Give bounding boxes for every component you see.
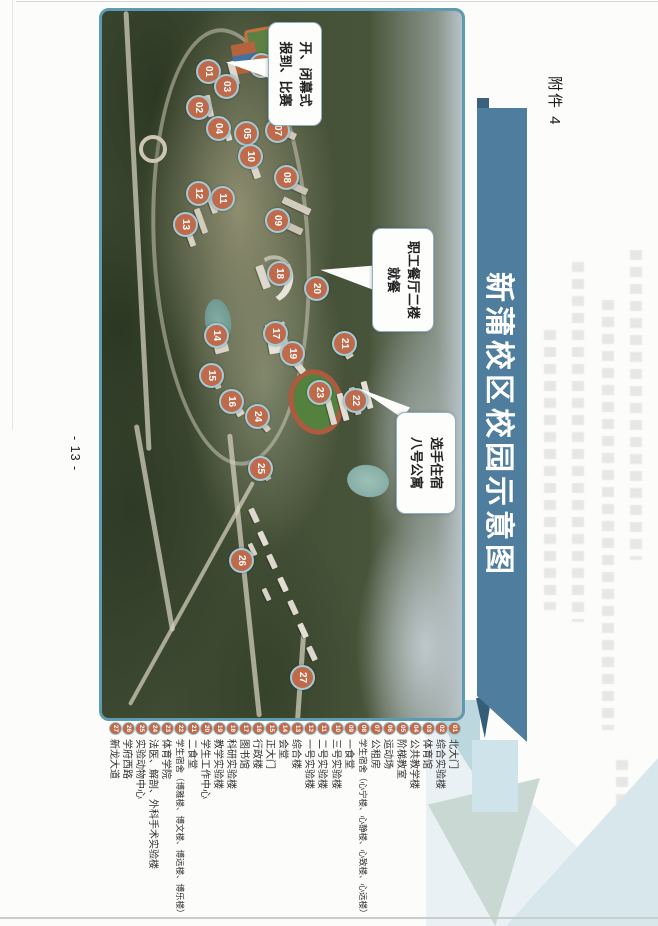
legend-item-14: 14会堂	[278, 722, 291, 759]
building	[281, 196, 311, 215]
legend-badge: 13	[291, 722, 304, 735]
legend-badge: 12	[304, 722, 317, 735]
scanned-page: 附件 4 新蒲校区校园示意图	[0, 0, 658, 926]
legend-badge: 14	[278, 722, 291, 735]
legend-item-16: 16行政楼	[252, 722, 265, 769]
legend-item-20: 20学生工作中心	[200, 722, 213, 799]
legend-item-06: 06运动场	[383, 722, 396, 769]
building	[255, 415, 271, 433]
legend-label: 体育学院	[160, 739, 175, 779]
building	[306, 645, 318, 661]
legend-badge: 17	[239, 722, 252, 735]
callout-text: 八号公寓	[406, 437, 426, 489]
building	[266, 553, 278, 569]
legend-label: 正大门	[264, 739, 279, 769]
scan-edge	[16, 1, 658, 2]
building	[276, 126, 297, 141]
building	[258, 465, 271, 482]
legend-badge: 18	[226, 722, 239, 735]
legend-item-07: 07公租房	[370, 722, 383, 769]
building	[247, 543, 257, 557]
legend-label: 学生宿舍（心宁楼、心静楼、心致楼、心远楼）	[357, 739, 369, 918]
building	[325, 399, 338, 426]
legend-badge: 09	[344, 722, 357, 735]
building	[287, 599, 299, 615]
legend-badge: 07	[370, 722, 383, 735]
legend-label: 学府西路	[121, 739, 136, 779]
legend-label: 一食堂	[343, 739, 358, 769]
decorative-polygon	[472, 740, 518, 812]
legend-label: 体育馆	[421, 739, 436, 769]
legend-badge: 25	[135, 722, 148, 735]
legend-badge: 26	[122, 722, 135, 735]
legend-label: 学生工作中心	[199, 739, 214, 799]
legend-item-15: 15正大门	[265, 722, 278, 769]
legend-badge: 05	[396, 722, 409, 735]
legend-badge: 11	[318, 722, 331, 735]
legend-item-01: 01北大门	[448, 722, 461, 769]
legend-label: 实验动物中心	[134, 739, 149, 799]
legend-label: 学生宿舍（博雅楼、博文楼、博远楼、博乐楼）	[174, 739, 186, 918]
landscape-sheet: 附件 4 新蒲校区校园示意图	[0, 0, 658, 926]
callout-lodging: 选手住宿 八号公寓	[396, 412, 456, 514]
building	[204, 95, 214, 118]
building	[348, 387, 361, 416]
legend-badge: 08	[357, 722, 370, 735]
legend-label: 三号实验楼	[330, 739, 345, 789]
callout-ceremony: 开、闭幕式 报到、比赛	[268, 22, 322, 126]
legend-item-05: 05阶梯教室	[396, 722, 409, 779]
legend-item-24: 24法医、解剖、外科手术实验楼	[148, 722, 161, 869]
legend-badge: 03	[422, 722, 435, 735]
legend-label: 运动场	[382, 739, 397, 769]
legend-label: 法医、解剖、外科手术实验楼	[147, 739, 162, 869]
building	[222, 121, 233, 142]
legend-badge: 27	[109, 722, 122, 735]
legend-badge: 15	[265, 722, 278, 735]
legend-label: 北大门	[447, 739, 462, 769]
scan-edge	[0, 917, 658, 919]
legend-item-02: 02综合实验楼	[435, 722, 448, 789]
building	[287, 353, 307, 374]
legend-label: 二号实验楼	[317, 739, 332, 789]
legend-item-10: 10三号实验楼	[331, 722, 344, 789]
building	[246, 153, 261, 180]
legend-badge: 06	[383, 722, 396, 735]
legend-label: 公租房	[369, 739, 384, 769]
legend-badge: 20	[200, 722, 213, 735]
building	[336, 393, 349, 422]
legend-item-17: 17图书馆	[239, 722, 252, 769]
legend-item-22: 22学生宿舍（博雅楼、博文楼、博远楼、博乐楼）	[174, 722, 187, 918]
building	[277, 576, 289, 592]
legend-item-04: 04公共教学楼	[409, 722, 422, 789]
title-banner: 新蒲校区校园示意图	[477, 108, 527, 742]
page-number: - 13 -	[68, 436, 82, 471]
legend-label: 阶梯教室	[395, 739, 410, 779]
building	[278, 176, 308, 195]
building	[255, 264, 271, 289]
building	[194, 208, 209, 234]
legend-badge: 23	[161, 722, 174, 735]
building	[227, 394, 245, 417]
legend-label: 会堂	[277, 739, 292, 759]
building	[338, 340, 354, 360]
legend-item-11: 11二号实验楼	[318, 722, 331, 789]
legend-label: 行政楼	[251, 739, 266, 769]
building	[257, 530, 269, 546]
legend-item-13: 13综合楼	[291, 722, 304, 769]
callout-text: 就餐	[383, 267, 403, 293]
callout-text: 选手住宿	[426, 437, 446, 489]
legend-item-18: 18科研实验楼	[226, 722, 239, 789]
legend-label: 二食堂	[186, 739, 201, 769]
building	[182, 221, 197, 247]
callout-text: 职工餐厅二楼	[403, 241, 423, 319]
legend-label: 综合楼	[290, 739, 305, 769]
legend-badge: 16	[252, 722, 265, 735]
callout-text: 开、闭幕式	[295, 41, 315, 106]
legend-label: 综合实验楼	[434, 739, 449, 789]
building	[261, 588, 271, 602]
scan-edge	[12, 0, 13, 430]
building	[265, 321, 290, 354]
building	[211, 332, 230, 355]
legend-label: 公共教学楼	[408, 739, 423, 789]
callout-dining: 职工餐厅二楼 就餐	[372, 228, 434, 332]
legend-badge: 22	[174, 722, 187, 735]
callout-text: 报到、比赛	[275, 41, 295, 106]
legend-item-26: 26学府西路	[122, 722, 135, 779]
legend-label: 教学实验楼	[212, 739, 227, 789]
legend-item-08: 08学生宿舍（心宁楼、心静楼、心致楼、心远楼）	[357, 722, 370, 918]
legend-badge: 04	[409, 722, 422, 735]
legend-item-12: 12一号实验楼	[304, 722, 317, 789]
legend-badge: 21	[187, 722, 200, 735]
page-title: 新蒲校区校园示意图	[480, 272, 524, 578]
legend-item-19: 19教学实验楼	[213, 722, 226, 789]
legend-label: 图书馆	[238, 739, 253, 769]
legend-badge: 01	[448, 722, 461, 735]
legend-label: 一号实验楼	[303, 739, 318, 789]
legend-item-25: 25实验动物中心	[135, 722, 148, 799]
legend-item-23: 23体育学院	[161, 722, 174, 779]
building	[210, 372, 221, 389]
legend-item-03: 03体育馆	[422, 722, 435, 769]
legend-item-21: 21二食堂	[187, 722, 200, 769]
legend-item-09: 09一食堂	[344, 722, 357, 769]
building	[273, 216, 303, 235]
building	[204, 188, 219, 214]
legend-label: 科研实验楼	[225, 739, 240, 789]
legend-badge: 02	[435, 722, 448, 735]
legend-badge: 24	[148, 722, 161, 735]
building	[297, 622, 309, 638]
legend-badge: 10	[331, 722, 344, 735]
legend-item-27: 27新龙大道	[109, 722, 122, 779]
legend-label: 新龙大道	[108, 739, 123, 779]
legend-badge: 19	[213, 722, 226, 735]
building	[248, 507, 260, 523]
